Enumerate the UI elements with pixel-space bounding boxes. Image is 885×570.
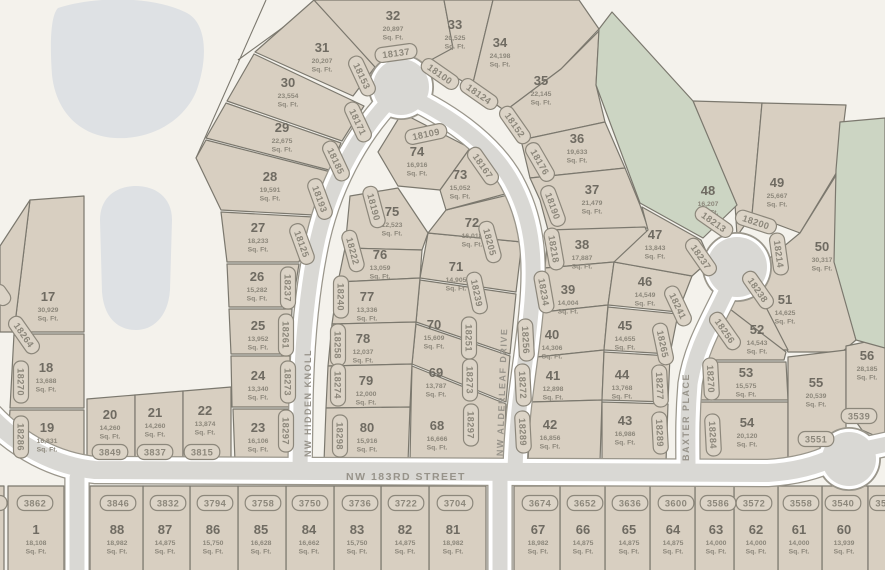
lot-sqft: 16,106Sq. Ft. — [248, 438, 269, 454]
lot-address-text: 3832 — [157, 498, 179, 508]
lot-address-badge: 18270 — [702, 358, 719, 401]
lot-address-text: 3572 — [743, 498, 765, 508]
lot-address-text: 18270 — [705, 365, 716, 393]
lot-sqft: 14,549Sq. Ft. — [635, 292, 656, 308]
lot-sqft: 14,260Sq. Ft. — [145, 423, 166, 439]
lot-number: 84 — [302, 522, 317, 537]
lot-sqft: 16,662Sq. Ft. — [299, 540, 320, 556]
lot-address-text: 18237 — [283, 274, 293, 302]
lot-number: 47 — [648, 227, 662, 242]
lot-sqft: 19,633Sq. Ft. — [567, 149, 588, 165]
lot-number: 56 — [860, 348, 874, 363]
lot-number: 86 — [206, 522, 220, 537]
lot-address-text: 3862 — [24, 498, 46, 508]
lot-sqft: 14,875Sq. Ft. — [663, 540, 684, 556]
lot-address-badge: 18274 — [331, 364, 346, 406]
lot-address-badge: 3862 — [17, 496, 53, 511]
lot-address-badge: 3572 — [736, 496, 772, 511]
lot-sqft: 20,525Sq. Ft. — [445, 35, 466, 51]
lot-address-badge: 3832 — [150, 496, 186, 511]
lot-number: 70 — [427, 317, 441, 332]
lot-sqft: 15,916Sq. Ft. — [357, 438, 378, 454]
lot-address-badge: 18240 — [334, 276, 349, 318]
lot-sqft: 25,667Sq. Ft. — [767, 193, 788, 209]
lot-sqft: 24,198Sq. Ft. — [490, 53, 511, 69]
lot-polygon-42[interactable] — [528, 400, 602, 462]
lot-address-badge: 3704 — [437, 496, 473, 511]
lot-number: 35 — [534, 73, 548, 88]
lot-sqft: 30,317Sq. Ft. — [812, 257, 833, 273]
lot-sqft: 16,916Sq. Ft. — [407, 162, 428, 178]
lot-sqft: 16,666Sq. Ft. — [427, 436, 448, 452]
lot-number: 49 — [770, 175, 784, 190]
lot-number: 83 — [350, 522, 364, 537]
lot-address-text: 3674 — [529, 498, 552, 508]
lot-address-badge: 3758 — [245, 496, 281, 511]
lot-address-text: 18297 — [281, 417, 291, 445]
lot-sqft: 16,986Sq. Ft. — [615, 431, 636, 447]
lot-address-badge: 3736 — [342, 496, 378, 511]
lot-number: 43 — [618, 413, 632, 428]
lot-sqft: 19,591Sq. Ft. — [260, 187, 281, 203]
lot-address-badge: 18298 — [333, 415, 348, 457]
lot-address-text: 18273 — [465, 366, 475, 394]
street-name-label: NW HIDDEN KNOLL — [303, 349, 313, 457]
lot-sqft: 14,306Sq. Ft. — [542, 345, 563, 361]
lot-number: 82 — [398, 522, 412, 537]
lot-address-text: 18270 — [16, 368, 26, 396]
lot-address-text: 18289 — [517, 418, 528, 446]
lot-address-badge: 3674 — [522, 496, 558, 511]
lot-sqft: 15,052Sq. Ft. — [450, 185, 471, 201]
lot-number: 54 — [740, 415, 755, 430]
lot-address-badge: 18289 — [651, 412, 668, 455]
lot-number: 61 — [792, 522, 806, 537]
lot-address-badge: 18297 — [464, 404, 479, 446]
lot-address-text: 3652 — [574, 498, 596, 508]
lot-address-badge: 18284 — [704, 414, 721, 457]
lot-address-badge: 3846 — [100, 496, 136, 511]
lot-sqft: 22,675Sq. Ft. — [272, 138, 293, 154]
lot-sqft: 13,336Sq. Ft. — [357, 307, 378, 323]
lot-sqft: 13,874Sq. Ft. — [195, 421, 216, 437]
lot-sqft: 20,207Sq. Ft. — [312, 58, 333, 74]
lot-sqft: 13,059Sq. Ft. — [370, 265, 391, 281]
lot-sqft: 23,554Sq. Ft. — [278, 93, 299, 109]
lot-address-text: 3837 — [144, 447, 166, 457]
lot-address-text: 18286 — [16, 423, 26, 451]
lot-address-badge: 3750 — [292, 496, 328, 511]
lot-number: 66 — [576, 522, 590, 537]
lot-address-text: 18277 — [654, 372, 665, 400]
lot-address-badge: 3837 — [137, 445, 173, 460]
lot-sqft: 18,982Sq. Ft. — [443, 540, 464, 556]
lot-sqft: 13,768Sq. Ft. — [612, 385, 633, 401]
lot-number: 78 — [356, 331, 370, 346]
lot-sqft: 13,688Sq. Ft. — [36, 378, 57, 394]
lot-sqft: 15,750Sq. Ft. — [203, 540, 224, 556]
lot-address-text: 18297 — [466, 411, 476, 439]
lot-number: 24 — [251, 368, 266, 383]
lot-number: 55 — [809, 375, 823, 390]
plat-map-canvas: NW HIDDEN KNOLLNW ALDERLEAF DRIVEBAXTER … — [0, 0, 885, 570]
lot-sqft: 15,609Sq. Ft. — [424, 335, 445, 351]
lot-number: 50 — [815, 239, 829, 254]
lot-address-badge: 3539 — [841, 409, 877, 424]
lot-number: 48 — [701, 183, 715, 198]
lot-address-text: 18298 — [335, 422, 345, 450]
lot-address-text: 3846 — [107, 498, 129, 508]
lot-sqft: 15,750Sq. Ft. — [347, 540, 368, 556]
lot-address-badge: 3551 — [798, 432, 834, 447]
lot-number: 26 — [250, 269, 264, 284]
lot-number: 25 — [251, 318, 265, 333]
lot-sqft: 30,929Sq. Ft. — [38, 307, 59, 323]
lot-address-badge: 3600 — [658, 496, 694, 511]
lot-address-badge: 18270 — [14, 361, 29, 403]
lot-address-text: 18272 — [517, 371, 528, 399]
lot-address-badge: 18272 — [514, 364, 531, 407]
lot-address-text: 18284 — [707, 421, 718, 450]
lot-number: 46 — [638, 274, 652, 289]
lot-number: 72 — [465, 215, 479, 230]
lot-number: 67 — [531, 522, 545, 537]
lot-number: 37 — [585, 182, 599, 197]
lot-sqft: 15,575Sq. Ft. — [736, 383, 757, 399]
lot-sqft: 14,000Sq. Ft. — [746, 540, 767, 556]
lot-sqft: 14,875Sq. Ft. — [619, 540, 640, 556]
lot-number: 33 — [448, 17, 462, 32]
lot-address-text: 3750 — [299, 498, 321, 508]
lot-sqft: 16,856Sq. Ft. — [540, 435, 561, 451]
lot-address-text: 3704 — [444, 498, 467, 508]
lot-number: 62 — [749, 522, 763, 537]
lot-address-badge: 18286 — [14, 416, 29, 458]
lot-sqft: 20,897Sq. Ft. — [383, 26, 404, 42]
lot-number: 81 — [446, 522, 460, 537]
lot-address-badge: 18256 — [517, 319, 534, 362]
lot-address-text: 3815 — [191, 447, 213, 457]
lot-address-text: 18274 — [333, 371, 343, 399]
lot-sqft: 13,952Sq. Ft. — [248, 336, 269, 352]
lot-address-text: 3636 — [619, 498, 641, 508]
lot-number: 20 — [103, 407, 117, 422]
lot-address-text: 18289 — [654, 419, 665, 447]
lot-number: 29 — [275, 120, 289, 135]
lot-sqft: 18,982Sq. Ft. — [107, 540, 128, 556]
lot-number: 75 — [385, 204, 399, 219]
lot-number: 28 — [263, 169, 277, 184]
street-name-label: BAXTER PLACE — [681, 373, 691, 461]
lot-sqft: 15,282Sq. Ft. — [247, 287, 268, 303]
lot-address-text: 3722 — [395, 498, 417, 508]
lot-sqft: 14,000Sq. Ft. — [706, 540, 727, 556]
lot-number: 88 — [110, 522, 124, 537]
lot-address-text: 3758 — [252, 498, 274, 508]
lot-address-badge: 3636 — [612, 496, 648, 511]
lot-address-badge: 3815 — [184, 445, 220, 460]
lot-number: 68 — [430, 418, 444, 433]
lot-number: 21 — [148, 405, 162, 420]
plat-map: NW HIDDEN KNOLLNW ALDERLEAF DRIVEBAXTER … — [0, 0, 885, 570]
lot-sqft: 13,939Sq. Ft. — [834, 540, 855, 556]
lot-sqft: 14,875Sq. Ft. — [155, 540, 176, 556]
lot-sqft: 12,000Sq. Ft. — [356, 391, 377, 407]
lot-number: 45 — [618, 318, 632, 333]
lot-sqft: 14,655Sq. Ft. — [615, 336, 636, 352]
lot-address-text: 3736 — [349, 498, 371, 508]
lot-address-text: 3540 — [832, 498, 854, 508]
lot-number: 40 — [545, 327, 559, 342]
lot-number: 34 — [493, 35, 508, 50]
lot-number: 17 — [41, 289, 55, 304]
lot-number: 69 — [429, 365, 443, 380]
lot-sqft: 14,875Sq. Ft. — [395, 540, 416, 556]
lot-address-badge: 18251 — [462, 317, 477, 359]
lot-number: 41 — [546, 368, 560, 383]
lot-sqft: 16,628Sq. Ft. — [251, 540, 272, 556]
lot-address-badge: 3586 — [700, 496, 736, 511]
lot-address-text: 18256 — [520, 326, 531, 354]
lot-address-badge: 18273 — [281, 361, 296, 403]
lot-number: 18 — [39, 360, 53, 375]
lot-address-text: 18251 — [464, 324, 474, 352]
lot-sqft: 16,831Sq. Ft. — [37, 438, 58, 454]
lot-number: 85 — [254, 522, 268, 537]
lot-address-text: 3551 — [805, 434, 827, 444]
lot-sqft: 14,905Sq. Ft. — [446, 277, 467, 293]
lot-address-text: 18261 — [281, 321, 291, 349]
lot-sqft: 14,000Sq. Ft. — [789, 540, 810, 556]
lot-number: 39 — [561, 282, 575, 297]
lot-number: 36 — [570, 131, 584, 146]
lot-sqft: 21,479Sq. Ft. — [582, 200, 603, 216]
lot-number: 22 — [198, 403, 212, 418]
lot-address-badge: 18273 — [463, 359, 478, 401]
lot-address-badge: 3722 — [388, 496, 424, 511]
lot-address-badge: 3652 — [567, 496, 603, 511]
lot-address-badge: 35 — [870, 496, 885, 511]
lot-address-badge: 18261 — [279, 314, 294, 356]
lot-number: 63 — [709, 522, 723, 537]
lot-address-badge: 3558 — [783, 496, 819, 511]
lot-address-text: 3849 — [99, 447, 121, 457]
lot-sqft: 18,233Sq. Ft. — [248, 238, 269, 254]
street-name-label: NW 183RD STREET — [346, 471, 466, 483]
lot-number: 74 — [410, 144, 425, 159]
lot-address-badge: 3540 — [825, 496, 861, 511]
lot-address-text: 18273 — [283, 368, 293, 396]
lot-address-text: 35 — [875, 498, 885, 508]
lot-number: 60 — [837, 522, 851, 537]
street-teardrop-turnaround — [373, 59, 429, 115]
lot-address-text: 3586 — [707, 498, 729, 508]
lot-number: 31 — [315, 40, 329, 55]
lot-number: 87 — [158, 522, 172, 537]
lot-sqft: 13,843Sq. Ft. — [645, 245, 666, 261]
lot-address-text: 3558 — [790, 498, 812, 508]
lot-address-text: 3539 — [848, 411, 870, 421]
lot-sqft: 22,145Sq. Ft. — [531, 91, 552, 107]
lot-sqft: 20,120Sq. Ft. — [737, 433, 758, 449]
lot-number: 19 — [40, 420, 54, 435]
lot-address-badge: 3794 — [197, 496, 233, 511]
lot-number: 23 — [251, 420, 265, 435]
lot-sqft: 14,875Sq. Ft. — [573, 540, 594, 556]
lot-sqft: 20,539Sq. Ft. — [806, 393, 827, 409]
lot-sqft: 12,898Sq. Ft. — [543, 386, 564, 402]
lot-sqft: 17,887Sq. Ft. — [572, 255, 593, 271]
lot-address-text: 3794 — [204, 498, 227, 508]
lot-number: 38 — [575, 237, 589, 252]
lot-number: 71 — [449, 259, 463, 274]
lot-number: 52 — [750, 322, 764, 337]
lot-address-badge: 18258 — [331, 324, 346, 366]
lot-address-badge: 18289 — [514, 411, 531, 454]
lot-sqft: 14,004Sq. Ft. — [558, 300, 579, 316]
lot-sqft: 18,108Sq. Ft. — [26, 540, 47, 556]
lot-number: 53 — [739, 365, 753, 380]
lot-number: 77 — [360, 289, 374, 304]
lot-number: 80 — [360, 420, 374, 435]
lot-address-badge: 18277 — [651, 365, 668, 408]
lot-sqft: 14,543Sq. Ft. — [747, 340, 768, 356]
lot-address-badge: 18237 — [281, 267, 296, 309]
lot-number: 1 — [32, 522, 39, 537]
lot-sqft: 16,018Sq. Ft. — [462, 233, 483, 249]
lot-number: 30 — [281, 75, 295, 90]
lot-sqft: 18,982Sq. Ft. — [528, 540, 549, 556]
lot-address-badge: 3849 — [92, 445, 128, 460]
lot-number: 73 — [453, 167, 467, 182]
lot-number: 27 — [251, 220, 265, 235]
lot-address-badge: 18297 — [279, 410, 294, 452]
lot-number: 64 — [666, 522, 681, 537]
lot-sqft: 13,340Sq. Ft. — [248, 386, 269, 402]
lot-number: 42 — [543, 417, 557, 432]
lot-number: 76 — [373, 247, 387, 262]
lot-sqft: 12,037Sq. Ft. — [353, 349, 374, 365]
lot-sqft: 14,260Sq. Ft. — [100, 425, 121, 441]
lot-address-text: 18258 — [333, 331, 343, 359]
pond — [100, 186, 172, 330]
lot-sqft: 14,625Sq. Ft. — [775, 310, 796, 326]
lot-number: 44 — [615, 367, 630, 382]
lot-sqft: 28,185Sq. Ft. — [857, 366, 878, 382]
lot-number: 51 — [778, 292, 792, 307]
lot-address-text: 18240 — [336, 283, 346, 311]
lot-number: 79 — [359, 373, 373, 388]
lot-number: 65 — [622, 522, 636, 537]
lot-sqft: 12,523Sq. Ft. — [382, 222, 403, 238]
lot-number: 32 — [386, 8, 400, 23]
lot-address-text: 3600 — [665, 498, 687, 508]
lot-sqft: 13,787Sq. Ft. — [426, 383, 447, 399]
